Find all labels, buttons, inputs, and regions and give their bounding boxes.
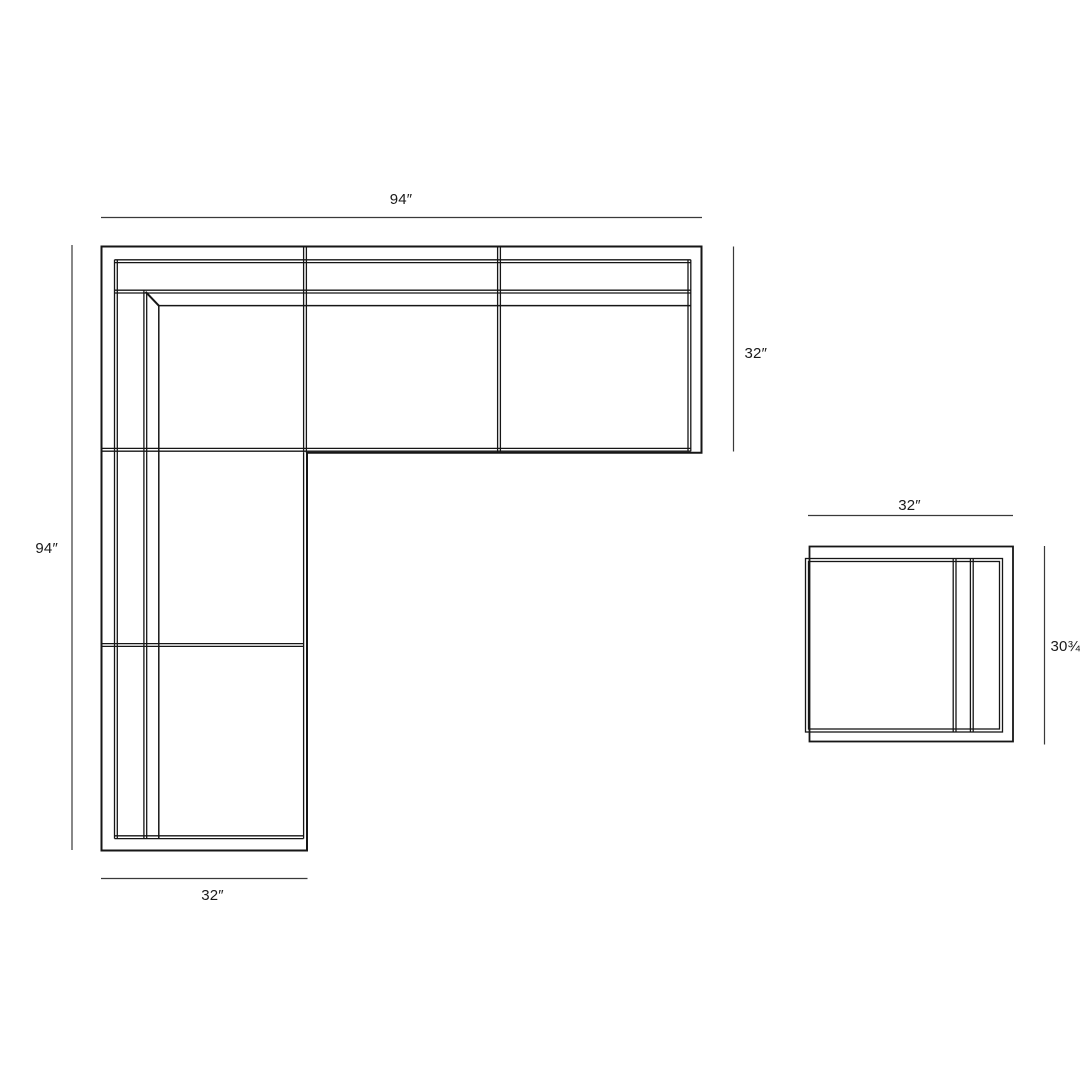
dimensions: 94″ 32″ 94″ 32″ 32″ 30¾″: [35, 191, 1080, 904]
armless-chair: [806, 547, 1014, 742]
furniture-plan-page: 94″ 32″ 94″ 32″ 32″ 30¾″: [0, 0, 1080, 1080]
dim-label-chair-top-width: 32″: [898, 497, 921, 514]
dim-label-sofa-top-width: 94″: [390, 191, 413, 208]
dim-label-sofa-left-length: 94″: [35, 540, 58, 557]
chair-outline: [810, 547, 1014, 742]
floorplan-drawing: 94″ 32″ 94″ 32″ 32″ 30¾″: [0, 0, 1080, 1080]
dim-label-sofa-right-depth: 32″: [745, 345, 768, 362]
sectional-sofa: [102, 247, 702, 851]
sofa-outline: [102, 247, 702, 851]
dim-label-chair-right-depth: 30¾″: [1051, 638, 1080, 655]
corner-miter-line: [146, 292, 160, 306]
dim-label-sofa-bottom-width: 32″: [201, 887, 224, 904]
